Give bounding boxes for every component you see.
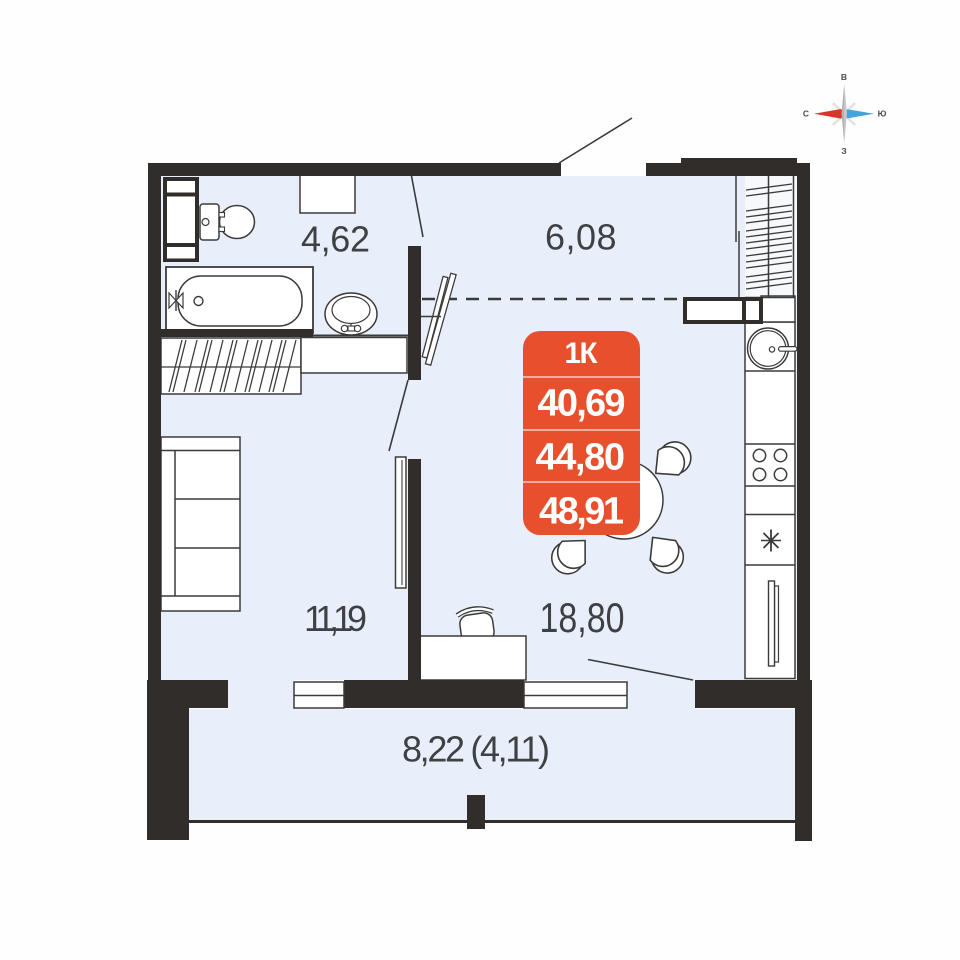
svg-text:40,69: 40,69 bbox=[538, 383, 626, 425]
svg-text:Ю: Ю bbox=[878, 109, 887, 119]
svg-text:6,08: 6,08 bbox=[545, 217, 617, 258]
svg-text:8,22 (4,11): 8,22 (4,11) bbox=[402, 729, 550, 770]
svg-text:4,62: 4,62 bbox=[301, 219, 370, 260]
svg-text:В: В bbox=[841, 72, 847, 82]
svg-text:18,80: 18,80 bbox=[540, 594, 625, 641]
svg-text:11,19: 11,19 bbox=[304, 598, 367, 639]
svg-text:1К: 1К bbox=[565, 337, 599, 370]
svg-text:44,80: 44,80 bbox=[536, 437, 626, 479]
svg-text:С: С bbox=[803, 109, 809, 119]
svg-text:З: З bbox=[841, 146, 846, 156]
svg-text:48,91: 48,91 bbox=[539, 491, 624, 533]
